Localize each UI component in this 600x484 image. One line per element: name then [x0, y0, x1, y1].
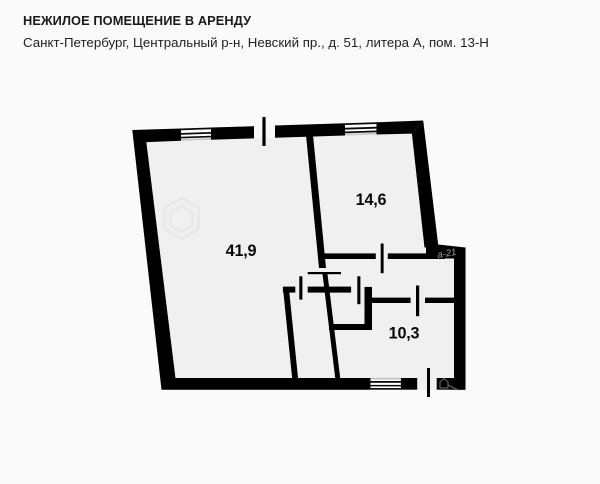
svg-text:10,3: 10,3: [389, 325, 420, 343]
svg-text:41,9: 41,9: [226, 242, 257, 260]
svg-text:14,6: 14,6: [356, 191, 387, 209]
